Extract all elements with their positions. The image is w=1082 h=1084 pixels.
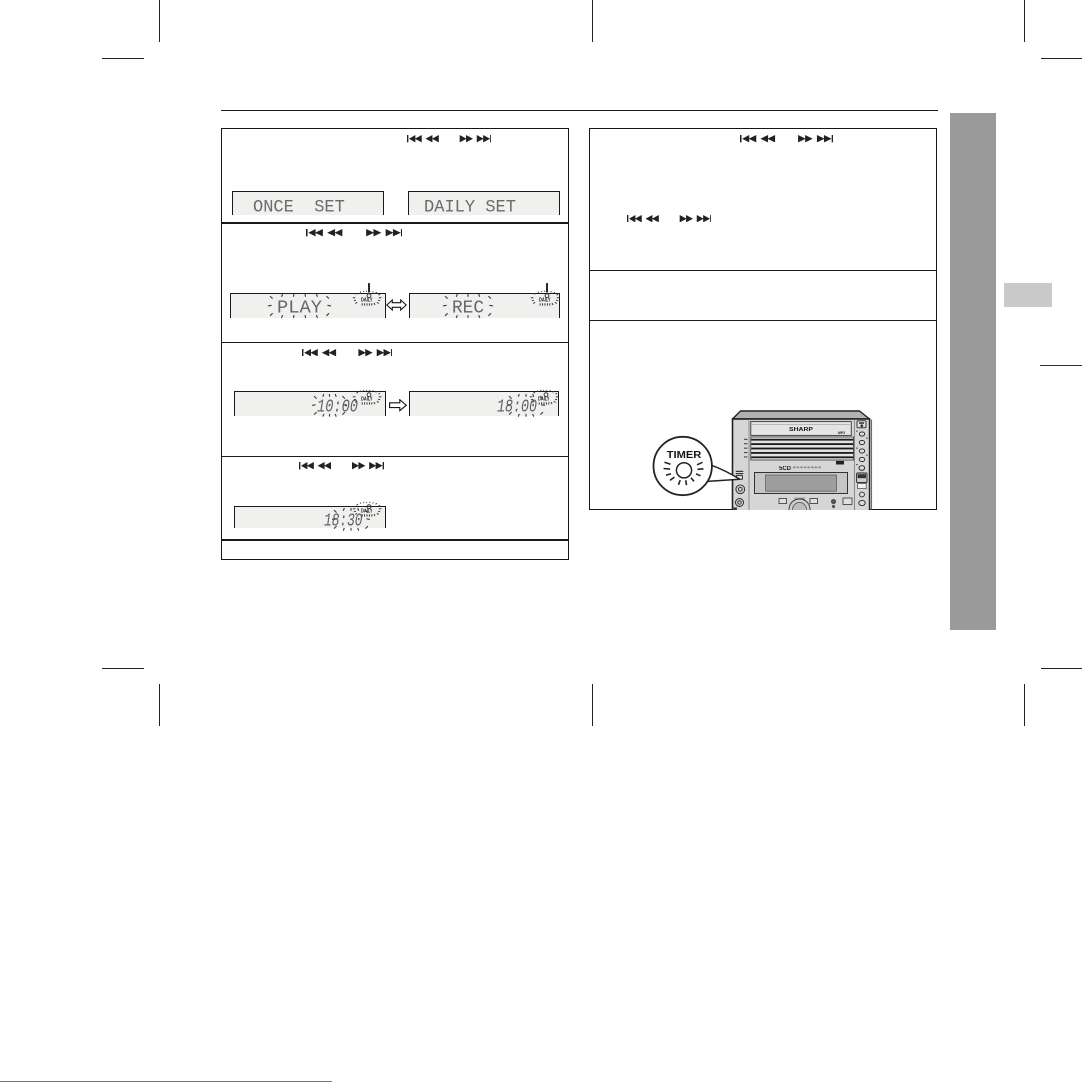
svg-text:MP3: MP3	[838, 431, 845, 435]
svg-text:TIMER: TIMER	[667, 450, 702, 461]
svg-text:DAILY: DAILY	[539, 297, 551, 303]
svg-text:DAILY: DAILY	[538, 396, 550, 402]
svg-text:5CD: 5CD	[779, 466, 792, 472]
svg-text:DAILY SET: DAILY SET	[424, 198, 516, 218]
svg-text:SHARP: SHARP	[789, 427, 813, 433]
svg-text:DAILY: DAILY	[361, 509, 373, 515]
svg-text:ONCE SET: ONCE SET	[253, 197, 345, 217]
svg-text:VOLUME: VOLUME	[794, 497, 805, 501]
svg-text:DAILY: DAILY	[361, 396, 373, 402]
svg-text:DAILY: DAILY	[361, 297, 373, 303]
